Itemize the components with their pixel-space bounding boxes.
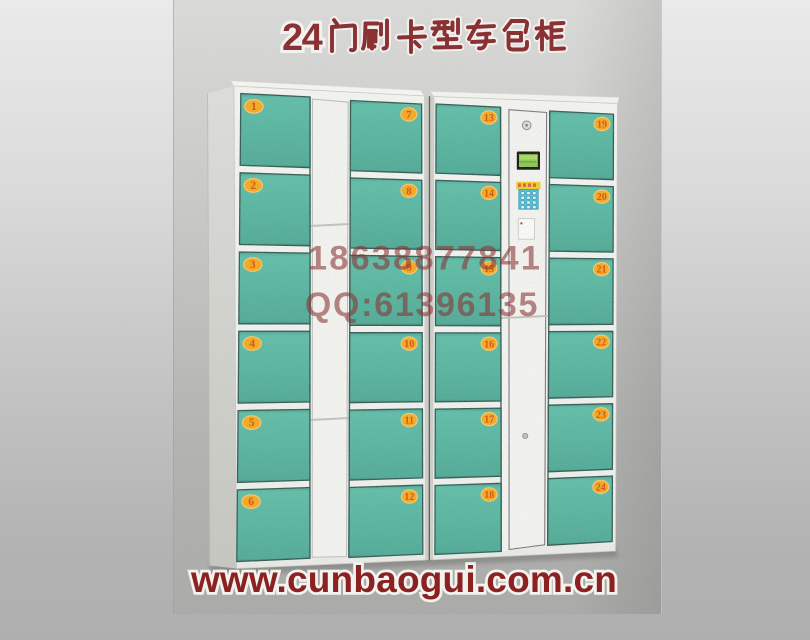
svg-text:www.cunbaogui.com.cn: www.cunbaogui.com.cn xyxy=(190,559,617,600)
svg-text:24: 24 xyxy=(282,17,323,59)
svg-text:18638877841: 18638877841 xyxy=(308,240,542,278)
svg-text:QQ:61396135: QQ:61396135 xyxy=(305,286,539,324)
